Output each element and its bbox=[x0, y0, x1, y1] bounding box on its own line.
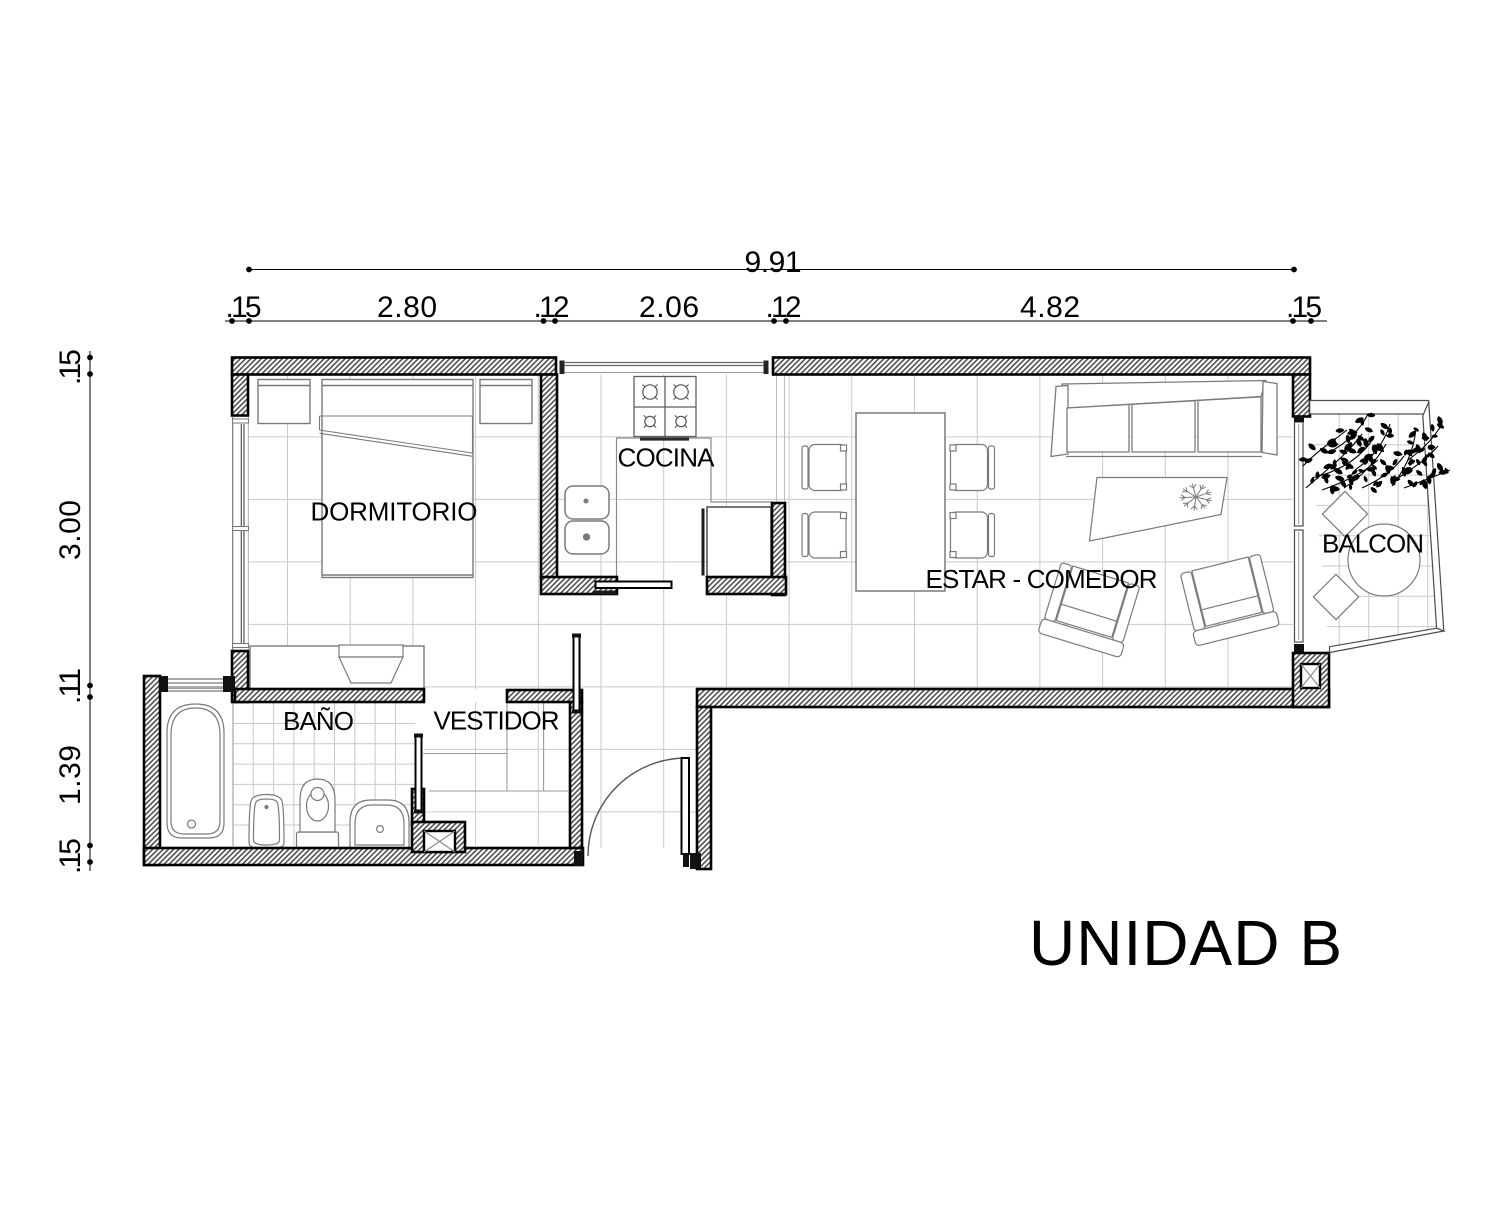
svg-text:.12: .12 bbox=[534, 291, 570, 324]
svg-text:UNIDAD B: UNIDAD B bbox=[1029, 907, 1342, 979]
svg-text:COCINA: COCINA bbox=[618, 443, 716, 473]
svg-text:1.39: 1.39 bbox=[54, 745, 87, 805]
svg-text:BAÑO: BAÑO bbox=[283, 706, 354, 736]
svg-text:2.80: 2.80 bbox=[377, 291, 437, 324]
svg-text:.15: .15 bbox=[54, 349, 87, 385]
svg-text:ESTAR - COMEDOR: ESTAR - COMEDOR bbox=[926, 564, 1158, 594]
svg-text:.15: .15 bbox=[1286, 291, 1322, 324]
svg-text:.12: .12 bbox=[766, 291, 802, 324]
svg-text:VESTIDOR: VESTIDOR bbox=[434, 706, 560, 736]
svg-text:9.91: 9.91 bbox=[745, 246, 802, 279]
svg-text:3.00: 3.00 bbox=[54, 500, 87, 560]
svg-text:BALCON: BALCON bbox=[1322, 529, 1424, 559]
svg-text:4.82: 4.82 bbox=[1020, 291, 1080, 324]
svg-text:.15: .15 bbox=[226, 291, 262, 324]
svg-text:.11: .11 bbox=[54, 668, 87, 704]
svg-text:DORMITORIO: DORMITORIO bbox=[311, 497, 478, 527]
svg-text:2.06: 2.06 bbox=[639, 291, 699, 324]
svg-text:.15: .15 bbox=[54, 838, 87, 874]
